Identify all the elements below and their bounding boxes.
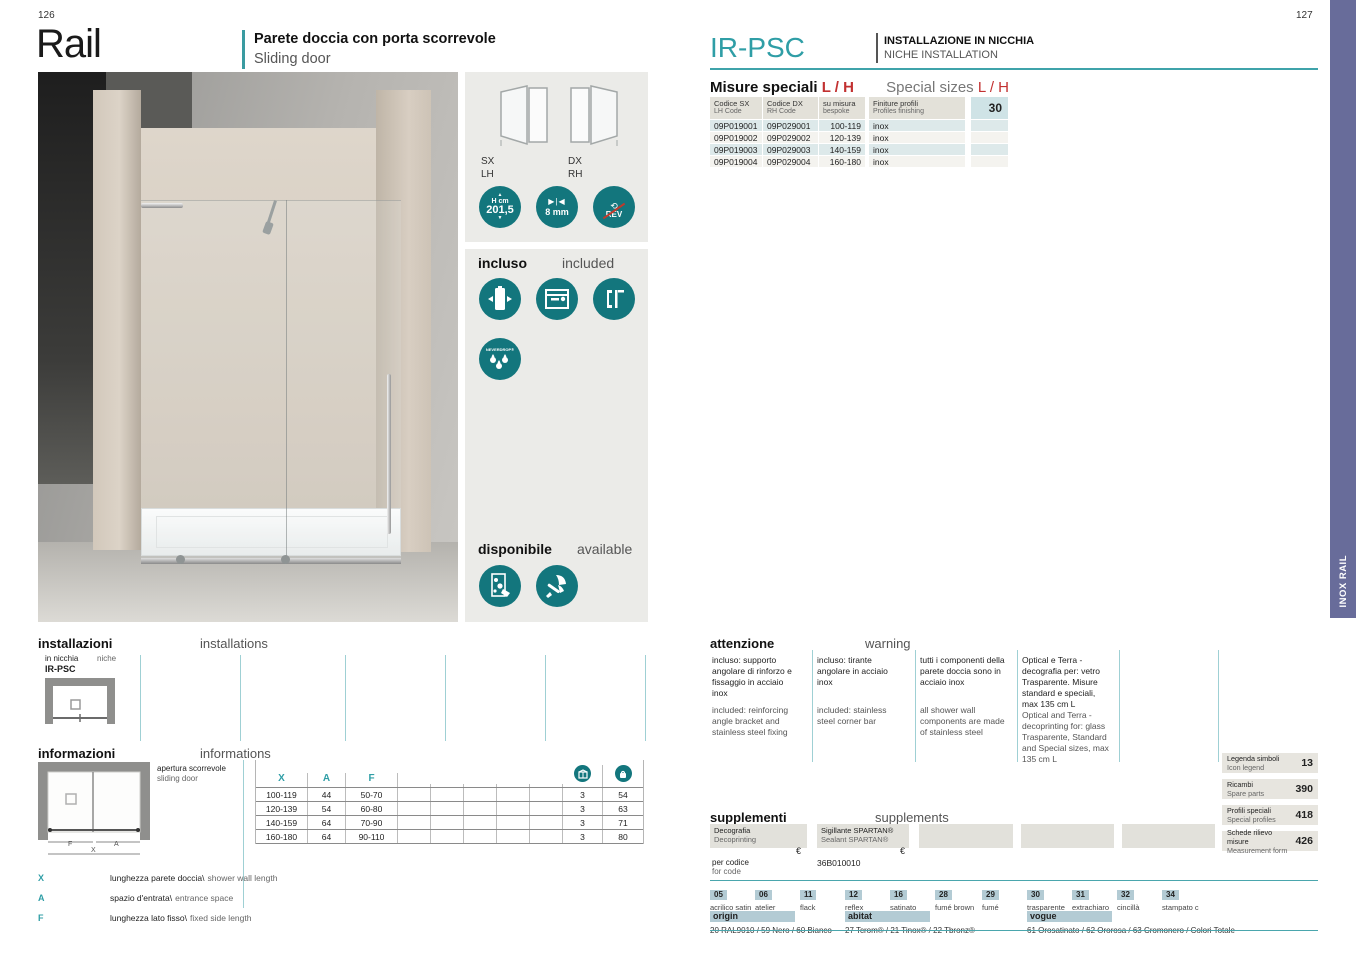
divider [545,655,546,741]
lh-label: LH [481,169,494,182]
header-rule [710,68,1318,70]
page-number-right: 127 [1296,10,1313,21]
spartan-sealant-icon [536,565,578,607]
height-column-header: 30 [971,97,1008,119]
col-header-x: X [256,773,308,787]
legend-row-x: Xlunghezza parete doccia\shower wall len… [38,868,277,886]
table-row: 09P019001 09P029001 100-119 inox [710,120,1010,131]
divider [645,655,646,741]
sliding-door-right-diagram [565,82,625,150]
section-tab-label: INOX RAIL [1338,555,1349,608]
currency-symbol: € [796,846,801,856]
product-photo [38,72,458,622]
included-label-en: included [562,255,614,271]
supplement-empty [1122,824,1215,848]
table-row: 160-180 64 90-110 3 80 [256,830,643,844]
reference-special-profiles: Profili specialiSpecial profiles 418 [1222,805,1318,825]
photo-glass-seam [286,200,287,562]
header-divider [876,33,878,63]
supplements-title-it: supplementi [710,810,787,825]
adjustable-wall-profile-icon [479,278,521,320]
photo-roller-left [176,555,185,564]
warning-column: incluso: tirante angolare in acciaio ino… [817,655,905,727]
table-row: 09P019002 09P029002 120-139 inox [710,132,1010,143]
warning-title-en: warning [865,636,911,651]
decoprinting-icon [479,565,521,607]
included-label-it: incluso [478,255,527,271]
warning-column: Optical e Terra - decografia per: vetro … [1022,655,1110,765]
model-code-title: IR-PSC [710,34,805,62]
divider [140,655,141,741]
installation-code: IR-PSC [45,664,76,674]
sizes-table-header: X A F [256,760,643,788]
photo-left-pillar [93,90,141,550]
sizes-table: X A F 100-119 44 50-70 3 54 120-139 54 6… [255,760,644,844]
divider [812,650,813,762]
special-sizes-title: Misure speciali L / H Special sizes L / … [710,79,1009,96]
available-label-it: disponibile [478,541,552,557]
reference-icon-legend: Legenda simboliIcon legend 13 [1222,753,1318,773]
available-label-en: available [577,541,632,557]
legend-row-a: Aspazio d'entrata\entrance space [38,888,277,906]
informations-title-it: informazioni [38,746,115,761]
dx-label: DX [568,156,582,169]
supplement-empty [919,824,1013,848]
informations-title-en: informations [200,746,271,761]
height-icon: ▲ H cm 201,5 ▼ [479,186,521,228]
supplement-empty [1021,824,1114,848]
special-sizes-table: Codice SXLH Code Codice DXRH Code su mis… [710,97,1010,167]
supplement-decoprinting: Decografia Decoprinting [710,824,807,848]
installation-type-it: in nicchia [45,654,78,663]
table-row: 120-139 54 60-80 3 63 [256,802,643,816]
supplements-title-en: supplements [875,810,949,825]
installation-header-en: NICHE INSTALLATION [884,48,1034,62]
catalog-spread: 126 Rail Parete doccia con porta scorrev… [0,0,1356,959]
photo-glass-door [141,200,401,563]
sliding-door-left-diagram [493,82,553,150]
packages-icon [574,765,591,782]
table-row: 140-159 64 70-90 3 71 [256,816,643,830]
page-number-left: 126 [38,10,55,21]
table-row: 09P019004 09P029004 160-180 inox [710,156,1010,167]
glass-thickness-value: 8 mm [545,208,569,217]
sliding-rail-mechanism-icon [536,278,578,320]
finish-code: 29fumé [982,884,1027,912]
opening-type-en: sliding door [157,774,198,783]
table-row: 09P019003 09P029003 140-159 inox [710,144,1010,155]
per-code-label: per codice for code [712,858,749,876]
subtitle-italian: Parete doccia con porta scorrevole [254,30,496,50]
dim-f-label: F [68,841,72,848]
reference-measurement-form: Schede rilievo misureMeasurement form 42… [1222,831,1318,851]
col-header-f: F [346,773,398,787]
neverdrop-icon: NEVERDROP® [479,338,521,380]
included-available-panel: incluso included [465,249,648,622]
fixed-panel-bracket-icon [593,278,635,320]
product-subtitle: Parete doccia con porta scorrevole Slidi… [242,30,496,69]
installations-title-it: installazioni [38,636,112,651]
installations-title-en: installations [200,636,268,651]
photo-door-handle [387,374,391,534]
warning-title-it: attenzione [710,636,774,651]
col-header-a: A [308,773,346,787]
special-sizes-header: Codice SXLH Code Codice DXRH Code su mis… [710,97,1010,119]
installation-type-en: niche [97,654,116,663]
photo-roller-right [281,555,290,564]
reference-spare-parts: RicambiSpare parts 390 [1222,779,1318,799]
finishes-top-rule [710,880,1318,881]
warning-column: incluso: supporto angolare di rinforzo e… [712,655,800,738]
divider [445,655,446,741]
supplement-code-value: 36B010010 [817,858,861,868]
warning-column: tutti i componenti della parete doccia s… [920,655,1008,738]
rh-label: RH [568,169,582,182]
dimension-diagram: F A X [38,762,150,862]
photo-support-bar [141,203,183,208]
niche-installation-diagram [45,678,115,732]
divider [915,650,916,762]
installation-header: INSTALLAZIONE IN NICCHIA NICHE INSTALLAT… [884,34,1034,63]
right-hand-label: DX RH [568,156,582,181]
finishes-bottom-rule [710,930,1318,931]
opening-type-it: apertura scorrevole [157,764,226,773]
legend-row-f: Flunghezza lato fisso\fixed side length [38,908,277,926]
sx-label: SX [481,156,494,169]
product-title: Rail [36,24,101,64]
supplement-sealant: Sigillante SPARTAN® Sealant SPARTAN® [817,824,909,848]
left-hand-label: SX LH [481,156,494,181]
dimension-legend: Xlunghezza parete doccia\shower wall len… [38,868,277,926]
currency-symbol: € [900,846,905,856]
divider [240,655,241,741]
installation-header-it: INSTALLAZIONE IN NICCHIA [884,34,1034,48]
glass-thickness-icon: ▶|◀ 8 mm [536,186,578,228]
section-tab: INOX RAIL [1330,0,1356,618]
reversible-icon: ⟲ REV [593,186,635,228]
orientation-panel: SX LH DX RH ▲ H cm 201,5 ▼ ▶|◀ 8 mm ⟲ RE… [465,72,648,242]
dim-x-label: X [91,847,96,854]
divider [1017,650,1018,762]
divider [1218,650,1219,762]
weight-icon [615,765,632,782]
dim-a-label: A [114,841,119,848]
divider [1119,650,1120,762]
divider [345,655,346,741]
table-row: 100-119 44 50-70 3 54 [256,788,643,802]
subtitle-english: Sliding door [254,50,496,70]
reference-links: Legenda simboliIcon legend 13 RicambiSpa… [1222,753,1318,857]
